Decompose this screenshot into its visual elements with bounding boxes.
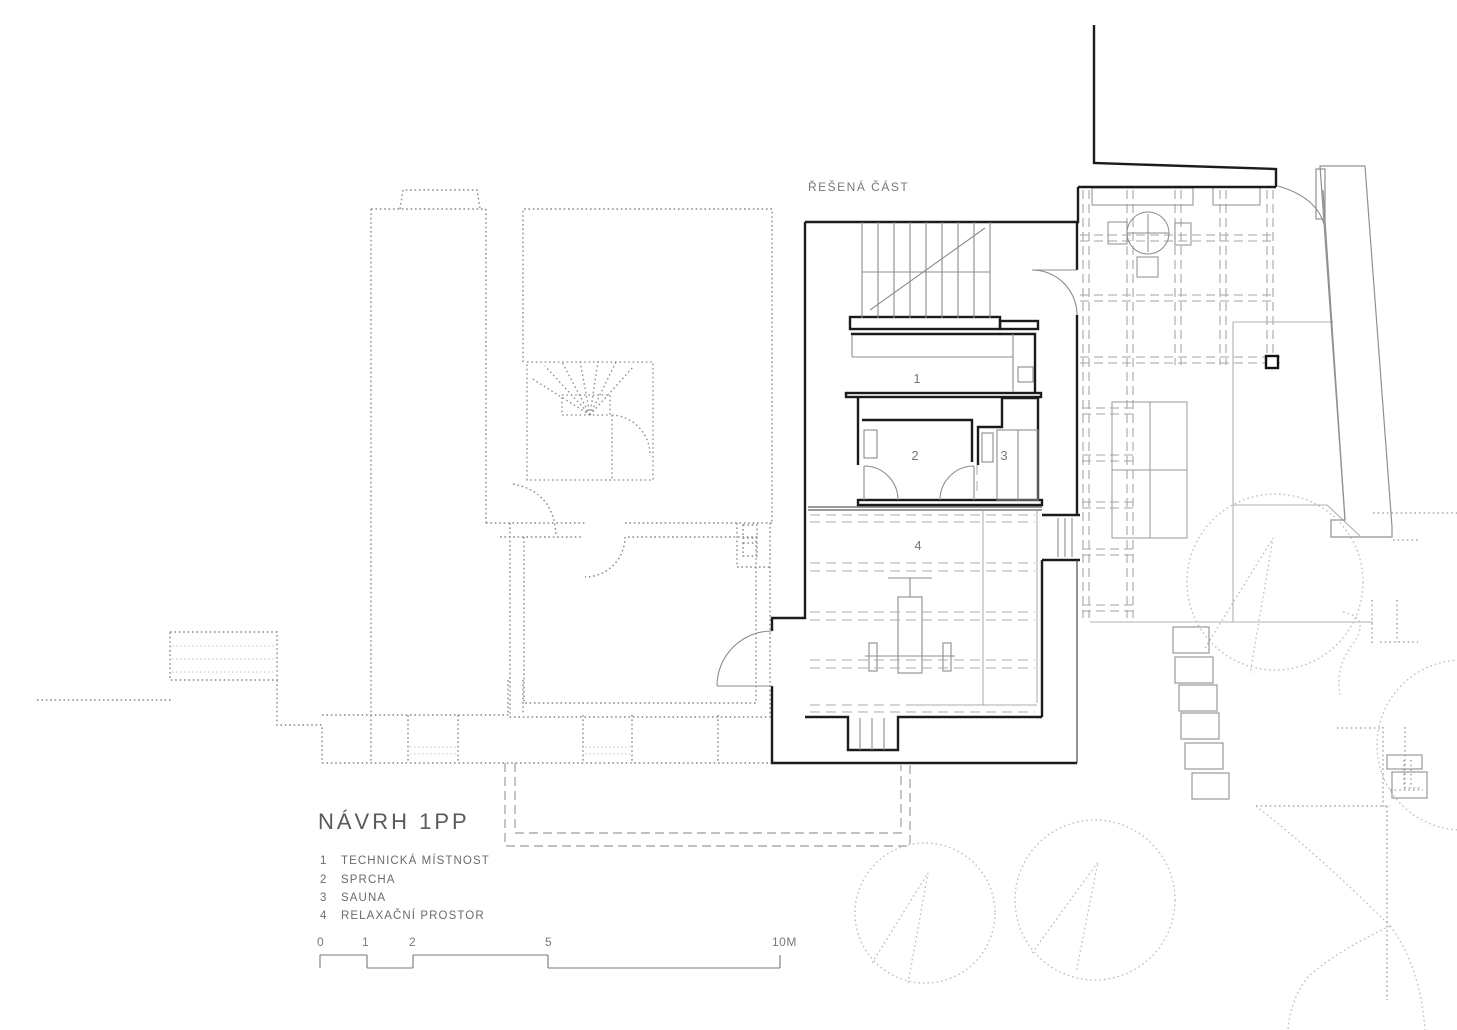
tree-south-1 (855, 843, 995, 983)
scale-label-2: 2 (409, 935, 416, 949)
room-label-2: 2 (911, 448, 918, 463)
legend-2-label: SPRCHA (341, 874, 396, 886)
annotation-resena-cast: ŘEŠENÁ ČÁST (808, 179, 909, 194)
garden-boundary-dotted (1256, 513, 1457, 1000)
room-label-4: 4 (914, 538, 921, 553)
terrace-joist-grid (1080, 190, 1280, 618)
existing-building-light-lines (172, 646, 630, 754)
legend-1-label: TECHNICKÁ MÍSTNOST (341, 854, 490, 867)
room-label-1: 1 (913, 371, 920, 386)
floor-plan-sheet: ŘEŠENÁ ČÁST 1 2 3 4 NÁVRH 1PP 1 TECHNICK… (0, 0, 1457, 1030)
interior-thin-lines (717, 222, 1077, 750)
legend-4-label: RELAXAČNÍ PROSTOR (341, 909, 485, 922)
new-building-walls (772, 25, 1276, 763)
column (1266, 356, 1278, 368)
existing-building-outline (322, 190, 775, 763)
winder-stair (527, 361, 653, 480)
scale-label-0: 0 (317, 935, 324, 949)
floor-plan-drawing: ŘEŠENÁ ČÁST 1 2 3 4 NÁVRH 1PP 1 TECHNICK… (0, 0, 1457, 1030)
legend: 1 TECHNICKÁ MÍSTNOST 2 SPRCHA 3 SAUNA 4 … (320, 854, 490, 922)
legend-3-number: 3 (320, 892, 328, 904)
legend-2-number: 2 (320, 874, 328, 886)
drawing-title: NÁVRH 1PP (318, 809, 470, 834)
retaining-wall (1316, 166, 1392, 537)
room4-grey-lines (913, 510, 1037, 705)
tree-corner (1377, 660, 1457, 830)
terrace-furniture (1092, 187, 1260, 277)
garden-gate-door-arc (1278, 186, 1324, 224)
lounge-furniture (1112, 402, 1187, 538)
site-boundary-left (37, 632, 322, 763)
scale-label-1: 1 (362, 935, 369, 949)
scale-labels: 0 1 2 5 10M (317, 935, 797, 949)
tree-south-2 (1015, 820, 1175, 980)
scale-label-5: 5 (545, 935, 552, 949)
south-path-dashed (505, 763, 910, 846)
legend-3-label: SAUNA (341, 892, 386, 904)
stepping-stones (1173, 627, 1427, 799)
room4-joists-dashed (810, 465, 1035, 712)
room-label-3: 3 (1000, 448, 1007, 463)
scale-bar (320, 955, 780, 968)
legend-4-number: 4 (320, 910, 328, 922)
scale-label-10m: 10M (772, 935, 797, 949)
legend-1-number: 1 (320, 855, 328, 867)
